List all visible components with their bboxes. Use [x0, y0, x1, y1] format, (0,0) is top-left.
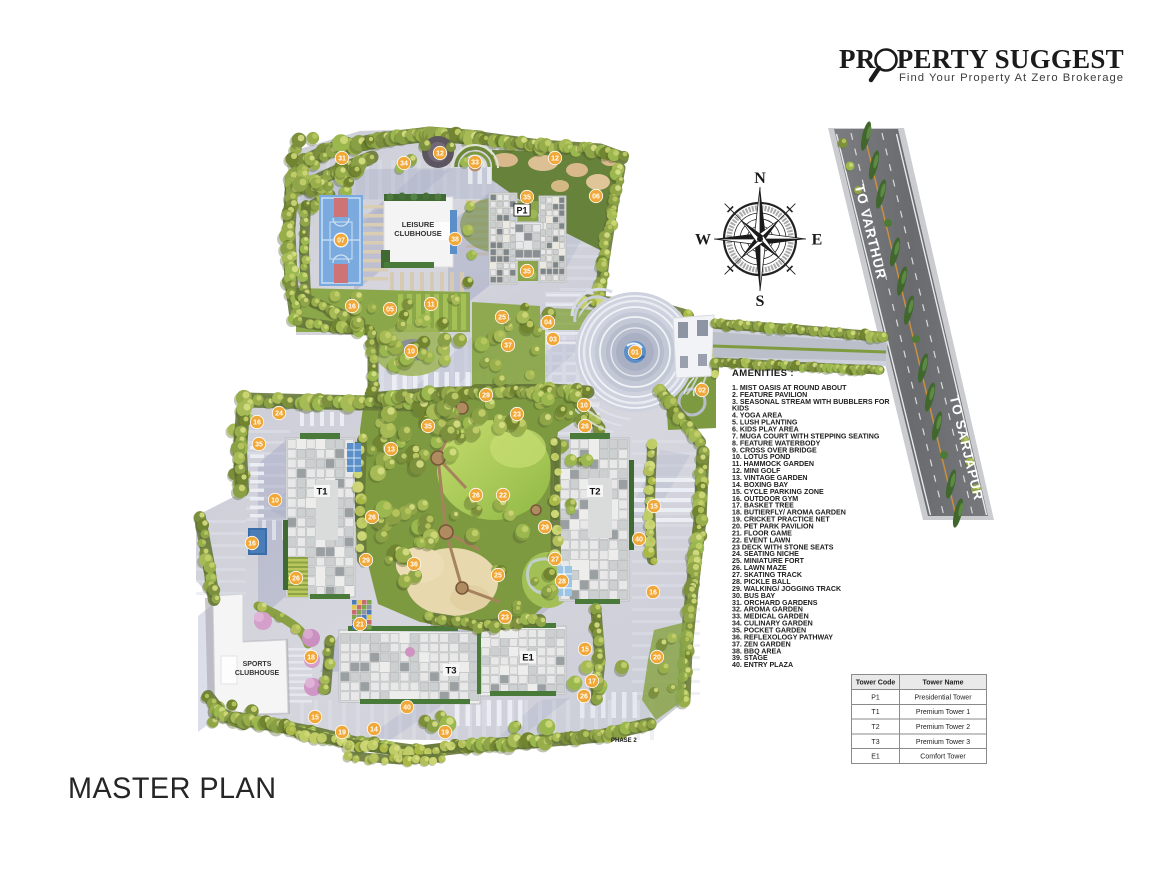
svg-text:19: 19 — [441, 730, 449, 737]
svg-text:36: 36 — [410, 562, 418, 569]
svg-text:24: 24 — [275, 411, 283, 418]
svg-text:02: 02 — [698, 388, 706, 395]
svg-text:35: 35 — [255, 442, 263, 449]
svg-text:01: 01 — [631, 350, 639, 357]
svg-text:40: 40 — [403, 705, 411, 712]
svg-text:16: 16 — [649, 590, 657, 597]
svg-text:T3: T3 — [445, 666, 456, 677]
svg-text:04: 04 — [544, 320, 552, 327]
svg-text:17: 17 — [588, 679, 596, 686]
svg-text:CLUBHOUSE: CLUBHOUSE — [394, 229, 442, 238]
svg-text:18: 18 — [307, 655, 315, 662]
svg-text:28: 28 — [558, 579, 566, 586]
svg-text:31: 31 — [338, 156, 346, 163]
svg-text:11: 11 — [427, 302, 435, 309]
svg-text:12: 12 — [551, 156, 559, 163]
svg-text:T2: T2 — [589, 487, 600, 498]
svg-text:26: 26 — [581, 424, 589, 431]
svg-text:34: 34 — [400, 161, 408, 168]
svg-text:T1: T1 — [316, 487, 328, 498]
svg-text:22: 22 — [499, 493, 507, 500]
svg-text:40: 40 — [635, 537, 643, 544]
svg-text:26: 26 — [292, 576, 300, 583]
svg-text:10: 10 — [271, 498, 279, 505]
svg-text:26: 26 — [472, 493, 480, 500]
svg-text:E: E — [812, 232, 823, 249]
svg-text:26: 26 — [580, 694, 588, 701]
svg-text:P1: P1 — [516, 206, 527, 216]
svg-text:27: 27 — [551, 557, 559, 564]
svg-text:W: W — [695, 232, 711, 249]
svg-text:S: S — [756, 293, 765, 310]
svg-text:10: 10 — [407, 349, 415, 356]
svg-text:29: 29 — [482, 393, 490, 400]
svg-text:LEISURE: LEISURE — [402, 220, 435, 229]
svg-text:35: 35 — [424, 424, 432, 431]
svg-text:25: 25 — [498, 315, 506, 322]
svg-text:20: 20 — [653, 655, 661, 662]
svg-text:05: 05 — [386, 307, 394, 314]
svg-text:06: 06 — [592, 194, 600, 201]
svg-text:SPORTS: SPORTS — [243, 661, 272, 668]
svg-text:E1: E1 — [522, 653, 534, 664]
svg-text:25: 25 — [494, 573, 502, 580]
svg-text:29: 29 — [541, 525, 549, 532]
svg-text:19: 19 — [338, 730, 346, 737]
svg-text:35: 35 — [523, 269, 531, 276]
svg-text:37: 37 — [504, 343, 512, 350]
svg-text:12: 12 — [436, 151, 444, 158]
svg-text:26: 26 — [368, 515, 376, 522]
svg-text:CLUBHOUSE: CLUBHOUSE — [235, 670, 280, 677]
svg-text:15: 15 — [581, 647, 589, 654]
svg-text:10: 10 — [580, 403, 588, 410]
svg-text:13: 13 — [387, 447, 395, 454]
svg-text:N: N — [754, 170, 766, 187]
svg-text:14: 14 — [370, 727, 378, 734]
svg-text:33: 33 — [471, 160, 479, 167]
svg-text:23: 23 — [513, 412, 521, 419]
svg-text:23: 23 — [501, 615, 509, 622]
svg-text:03: 03 — [549, 337, 557, 344]
svg-text:38: 38 — [451, 237, 459, 244]
svg-text:15: 15 — [650, 504, 658, 511]
svg-text:21: 21 — [356, 622, 364, 629]
svg-text:PHASE 2: PHASE 2 — [611, 738, 637, 744]
svg-text:16: 16 — [253, 420, 261, 427]
svg-text:16: 16 — [348, 304, 356, 311]
svg-text:16: 16 — [248, 541, 256, 548]
svg-text:29: 29 — [362, 558, 370, 565]
svg-text:15: 15 — [311, 715, 319, 722]
svg-text:35: 35 — [523, 195, 531, 202]
svg-text:07: 07 — [337, 238, 345, 245]
